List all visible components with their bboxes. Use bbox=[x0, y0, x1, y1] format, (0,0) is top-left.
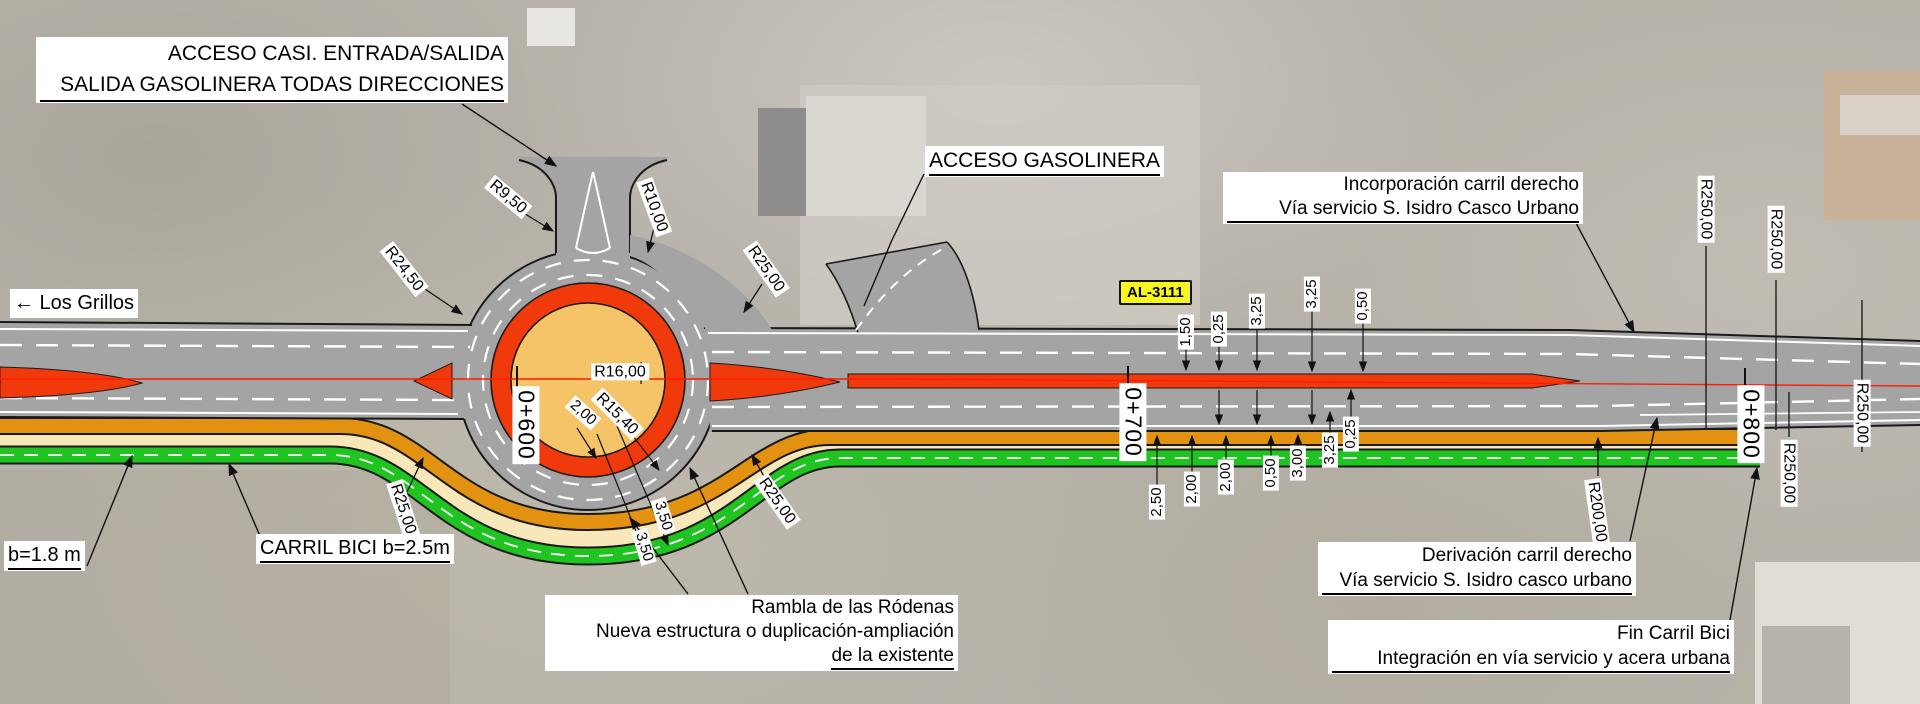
callout-line: CARRIL BICI b=2.5m bbox=[260, 535, 450, 563]
callout-line: de la existente bbox=[549, 644, 954, 670]
dimension-label: 0,50 bbox=[1355, 288, 1371, 323]
callout-line: ACCESO GASOLINERA bbox=[929, 147, 1160, 176]
station-label-0600: 0+600 bbox=[513, 386, 540, 464]
callout-fin-carril-bici: Fin Carril Bici Integración en vía servi… bbox=[1328, 620, 1734, 674]
callout-b-arcen: b=1.8 m bbox=[4, 541, 85, 571]
callout-line-underlined: de la existente bbox=[831, 644, 954, 670]
dimension-label: 0,25 bbox=[1211, 311, 1227, 346]
callout-line: Derivación carril derecho bbox=[1322, 543, 1632, 568]
radius-label: R250,00 bbox=[1780, 440, 1797, 507]
callout-incorporacion: Incorporación carril derecho Vía servici… bbox=[1223, 172, 1583, 224]
callout-line: Rambla de las Ródenas bbox=[549, 596, 954, 620]
dimension-label: 2,50 bbox=[1149, 484, 1165, 519]
station-label-0800: 0+800 bbox=[1738, 385, 1765, 463]
callout-acceso-gasolinera: ACCESO GASOLINERA bbox=[925, 146, 1164, 177]
callout-line: ← Los Grillos bbox=[14, 290, 134, 317]
dimension-label: 0,25 bbox=[1343, 416, 1359, 451]
callout-line: Incorporación carril derecho bbox=[1227, 173, 1579, 197]
dimension-label: 2,00 bbox=[1184, 471, 1200, 506]
callout-line: Fin Carril Bici bbox=[1332, 621, 1730, 646]
callout-line: Integración en vía servicio y acera urba… bbox=[1332, 646, 1730, 673]
radius-label: R250,00 bbox=[1853, 380, 1870, 447]
dimension-label: 2,00 bbox=[1218, 459, 1234, 494]
callout-line: ACCESO CASI. ENTRADA/SALIDA bbox=[40, 38, 504, 69]
dimension-label: 3,25 bbox=[1249, 293, 1265, 328]
callout-acceso-casi: ACCESO CASI. ENTRADA/SALIDA SALIDA GASOL… bbox=[36, 37, 508, 103]
dimension-label: 3,00 bbox=[1290, 445, 1306, 480]
dimension-label: 3,25 bbox=[1304, 276, 1320, 311]
callout-carril-bici: CARRIL BICI b=2.5m bbox=[256, 534, 454, 564]
callout-line: Nueva estructura o duplicación-ampliació… bbox=[549, 620, 954, 644]
callout-line: b=1.8 m bbox=[8, 542, 81, 570]
dimension-label: 1,50 bbox=[1178, 314, 1194, 349]
callout-los-grillos: ← Los Grillos bbox=[10, 289, 138, 318]
plan-drawing bbox=[0, 0, 1920, 704]
dimension-label: 0,50 bbox=[1263, 455, 1279, 490]
callout-derivacion: Derivación carril derecho Vía servicio S… bbox=[1318, 542, 1636, 596]
dimension-label: 3,25 bbox=[1322, 432, 1338, 467]
callout-line: Vía servicio S. Isidro Casco Urbano bbox=[1227, 197, 1579, 223]
radius-label: R250,00 bbox=[1767, 206, 1784, 273]
callout-rambla: Rambla de las Ródenas Nueva estructura o… bbox=[545, 595, 958, 671]
callout-line: SALIDA GASOLINERA TODAS DIRECCIONES bbox=[40, 69, 504, 102]
radius-label: R16,00 bbox=[591, 363, 649, 380]
callout-line: Vía servicio S. Isidro casco urbano bbox=[1322, 568, 1632, 595]
road-code-badge: AL-3111 bbox=[1119, 280, 1192, 305]
plan-view: 0+600 0+700 0+800 R9,50 R24,50 R10,00 R2… bbox=[0, 0, 1920, 704]
station-label-0700: 0+700 bbox=[1120, 383, 1147, 461]
radius-label: R250,00 bbox=[1697, 176, 1714, 243]
